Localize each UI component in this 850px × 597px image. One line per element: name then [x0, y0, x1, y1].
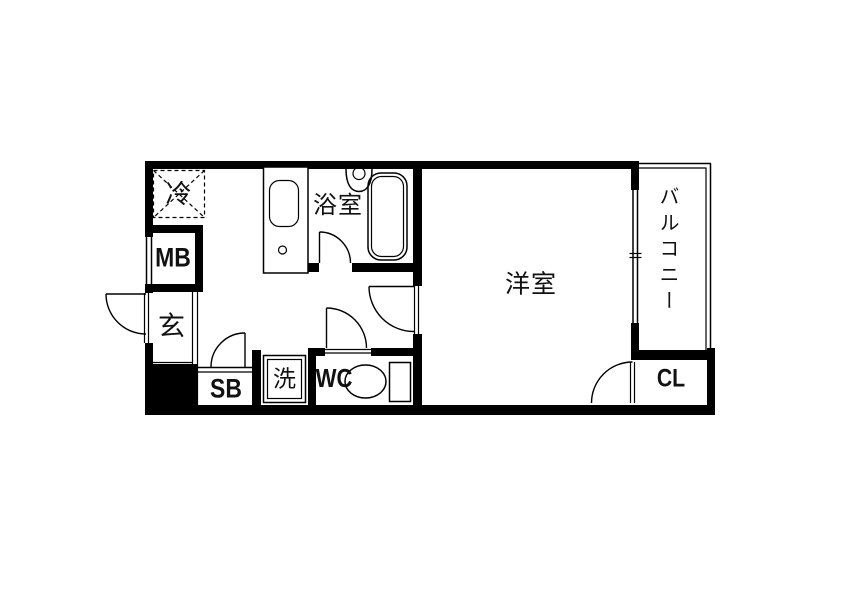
wash-basin: [346, 168, 372, 192]
room-label-refrigerator: 冷: [165, 181, 192, 207]
room-label-shoe-box: SB: [210, 376, 242, 403]
room-door: [369, 286, 419, 334]
window-left-wall: [147, 237, 152, 285]
room-label-western-room: 洋室: [505, 273, 557, 298]
entrance-door: [106, 293, 149, 343]
toilet: [345, 363, 411, 402]
room-label-entrance: 玄: [158, 314, 186, 341]
room-label-bathroom: 浴室: [313, 194, 363, 218]
bathtub: [368, 173, 407, 260]
shoebox-door: [211, 333, 245, 367]
floor-plan: 冷 MB 玄 SB 洗 WC 浴室 洋室 バルコニー CL: [0, 0, 850, 597]
window-balcony: [630, 190, 642, 323]
floor-plan-drawing: [0, 0, 850, 597]
room-label-meter-box: MB: [155, 245, 191, 272]
wc-door: [325, 308, 371, 353]
room-label-laundry: 洗: [273, 368, 297, 391]
room-label-balcony: バルコニー: [657, 186, 677, 316]
room-label-wc: WC: [316, 365, 353, 391]
room-label-closet: CL: [657, 367, 685, 392]
kitchen-counter: [264, 167, 309, 273]
closet-door: [592, 362, 635, 403]
bathroom-door: [320, 232, 351, 263]
